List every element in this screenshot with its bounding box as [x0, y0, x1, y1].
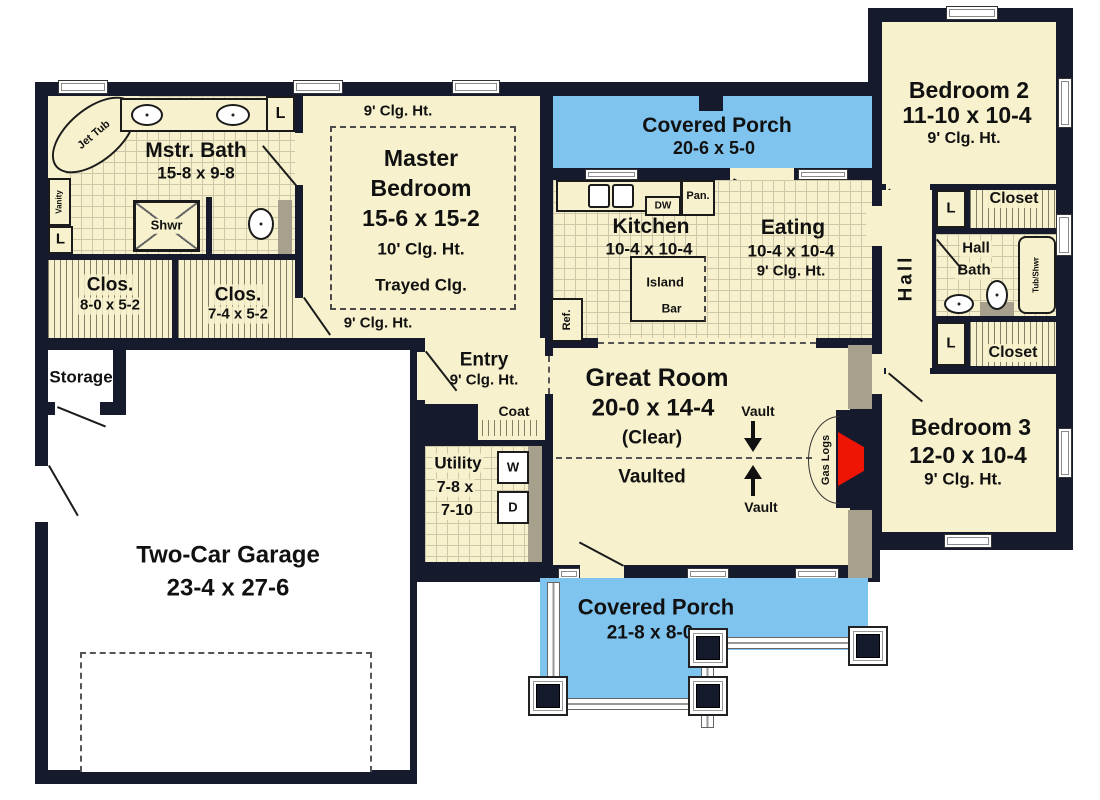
shower: Shwr: [133, 200, 200, 252]
closet1-dims: 8-0 x 5-2: [77, 298, 143, 315]
porch-railing-step: [701, 714, 714, 728]
window: [293, 80, 343, 94]
porch-top-dims: 20-6 x 5-0: [673, 138, 755, 158]
jet-tub-label: Jet Tub: [75, 118, 112, 152]
porch-column: [848, 626, 888, 666]
toilet: [248, 208, 274, 240]
eating-name: Eating: [761, 216, 825, 240]
dryer-label: D: [508, 500, 517, 515]
closet-top-label: Closet: [988, 190, 1041, 208]
master-bath-name: Mstr. Bath: [145, 139, 247, 163]
fireplace-cabinet-bottom: [848, 510, 872, 578]
cased-opening-dash: [598, 342, 816, 344]
vanity: Vanity: [48, 178, 71, 226]
window: [58, 80, 108, 94]
hall-linen-top: L: [936, 190, 966, 228]
linen-label: L: [276, 105, 286, 123]
pantry: Pan.: [681, 180, 715, 216]
hall-bath-name2: Bath: [955, 263, 992, 280]
porch-post: [699, 96, 723, 111]
eating-clg: 9' Clg. Ht.: [757, 264, 826, 281]
hall-linen-bottom: L: [936, 322, 966, 366]
utility-dims1: 7-8 x: [435, 479, 475, 497]
window: [798, 169, 848, 180]
window: [946, 6, 998, 20]
porch-railing-right: [726, 637, 852, 649]
floor-plan: Jet Tub L Mstr. Bath 15-8 x 9-8 Vanity L…: [0, 0, 1100, 800]
dishwasher: DW: [645, 196, 681, 216]
linen-label: L: [946, 201, 955, 218]
vault-label-bottom: Vault: [744, 500, 777, 516]
porch-railing-bottom: [566, 698, 692, 710]
window: [452, 80, 500, 94]
porch-column: [688, 676, 728, 716]
kitchen-island: Island Bar: [630, 256, 706, 322]
tub-shower-label: Tub/Shwr: [1033, 257, 1042, 293]
island-label: Island: [646, 276, 684, 291]
bedroom2-dims: 11-10 x 10-4: [902, 103, 1031, 129]
entry-clg: 9' Clg. Ht.: [450, 373, 519, 390]
porch-column: [528, 676, 568, 716]
master-bath-sink-1: [131, 104, 163, 126]
door-opening: [886, 368, 930, 374]
bedroom2-clg: 9' Clg. Ht.: [927, 130, 1000, 148]
bedroom3-dims: 12-0 x 10-4: [909, 443, 1027, 469]
master-bath-dims: 15-8 x 9-8: [157, 163, 235, 182]
wall: [206, 197, 212, 254]
linen-label: L: [56, 232, 65, 249]
dryer: D: [497, 491, 529, 524]
entry-name: Entry: [460, 349, 509, 370]
porch-bottom-name: Covered Porch: [578, 596, 735, 621]
vault-arrow-up-stem: [751, 479, 755, 496]
master-tray: Trayed Clg.: [375, 275, 467, 294]
linen-label: L: [946, 336, 955, 353]
toilet-nook-shelf: [278, 200, 292, 254]
porch-top-name: Covered Porch: [642, 114, 791, 138]
master-name1: Master: [384, 146, 458, 172]
bedroom2-name: Bedroom 2: [909, 78, 1029, 104]
porch-railing-left: [547, 582, 560, 678]
bar-label: Bar: [662, 302, 682, 315]
kitchen-sink-2: [612, 184, 634, 208]
ref-label: Ref.: [561, 310, 573, 331]
opening-dash: [548, 356, 550, 394]
door-opening: [35, 466, 48, 522]
closet2-dims: 7-4 x 5-2: [205, 307, 271, 324]
utility-shelf: [528, 446, 542, 562]
utility-dims2: 7-10: [439, 502, 475, 520]
window: [1058, 78, 1072, 128]
closet-bottom-label: Closet: [987, 344, 1040, 362]
vault-label-top: Vault: [741, 404, 774, 420]
vault-ridge-line: [556, 457, 812, 459]
coat-hatch: [482, 420, 542, 436]
master-name2: Bedroom: [371, 176, 472, 202]
gas-logs-label: Gas Logs: [820, 435, 832, 485]
door-opening: [295, 298, 303, 338]
vault-arrow-down-stem: [751, 421, 755, 438]
hall-bath-name1: Hall: [960, 241, 992, 258]
fireplace-cabinet-top: [848, 345, 872, 409]
eating-dims: 10-4 x 10-4: [748, 241, 835, 260]
great-room-vaulted: Vaulted: [618, 466, 686, 487]
bedroom3-name: Bedroom 3: [911, 415, 1031, 441]
garage-dims: 23-4 x 27-6: [167, 576, 290, 603]
dw-label: DW: [655, 200, 672, 211]
great-room-name: Great Room: [585, 364, 728, 392]
linen-closet-top: L: [266, 96, 295, 132]
washer: W: [497, 451, 529, 484]
coat-label: Coat: [498, 404, 529, 420]
master-clg: 10' Clg. Ht.: [377, 239, 464, 258]
hall-label: Hall: [895, 255, 916, 302]
garage-name: Two-Car Garage: [136, 543, 320, 570]
door-opening: [417, 352, 427, 400]
linen-closet-bottom: L: [48, 226, 73, 254]
window: [944, 534, 992, 548]
vault-arrow-up: [744, 465, 762, 479]
kitchen-name: Kitchen: [612, 215, 689, 239]
door-opening: [730, 168, 794, 180]
garage-parking-outline: [80, 652, 372, 772]
wall: [470, 404, 478, 440]
master-dims: 15-6 x 15-2: [362, 206, 480, 232]
hall-bath-sink: [944, 294, 974, 314]
kitchen-sink-1: [588, 184, 610, 208]
window: [1058, 428, 1072, 478]
hall-bath-toilet: [986, 280, 1008, 310]
closet2-name: Clos.: [212, 284, 264, 305]
refrigerator: Ref.: [551, 298, 583, 342]
vault-arrow-down: [744, 438, 762, 452]
window: [585, 169, 638, 180]
master-clg-top: 9' Clg. Ht.: [364, 104, 433, 121]
great-room-clear: (Clear): [622, 427, 682, 448]
window: [1056, 214, 1072, 256]
great-room-dims: 20-0 x 14-4: [592, 396, 715, 423]
master-bath-sink-2: [216, 104, 250, 126]
vanity-label: Vanity: [55, 190, 64, 214]
storage-label: Storage: [49, 367, 112, 386]
closet1-name: Clos.: [84, 274, 136, 295]
porch-bottom-dims: 21-8 x 8-0: [607, 622, 694, 643]
tub-shower: Tub/Shwr: [1018, 236, 1056, 314]
porch-column: [688, 628, 728, 668]
door-opening: [295, 133, 303, 185]
washer-label: W: [507, 460, 519, 475]
bedroom3-clg: 9' Clg. Ht.: [924, 469, 1002, 488]
utility-name: Utility: [432, 453, 483, 472]
opening-hall-eating: [866, 206, 884, 246]
master-clg-bottom: 9' Clg. Ht.: [344, 316, 413, 333]
shower-label: Shwr: [149, 219, 185, 234]
pan-label: Pan.: [686, 190, 709, 202]
